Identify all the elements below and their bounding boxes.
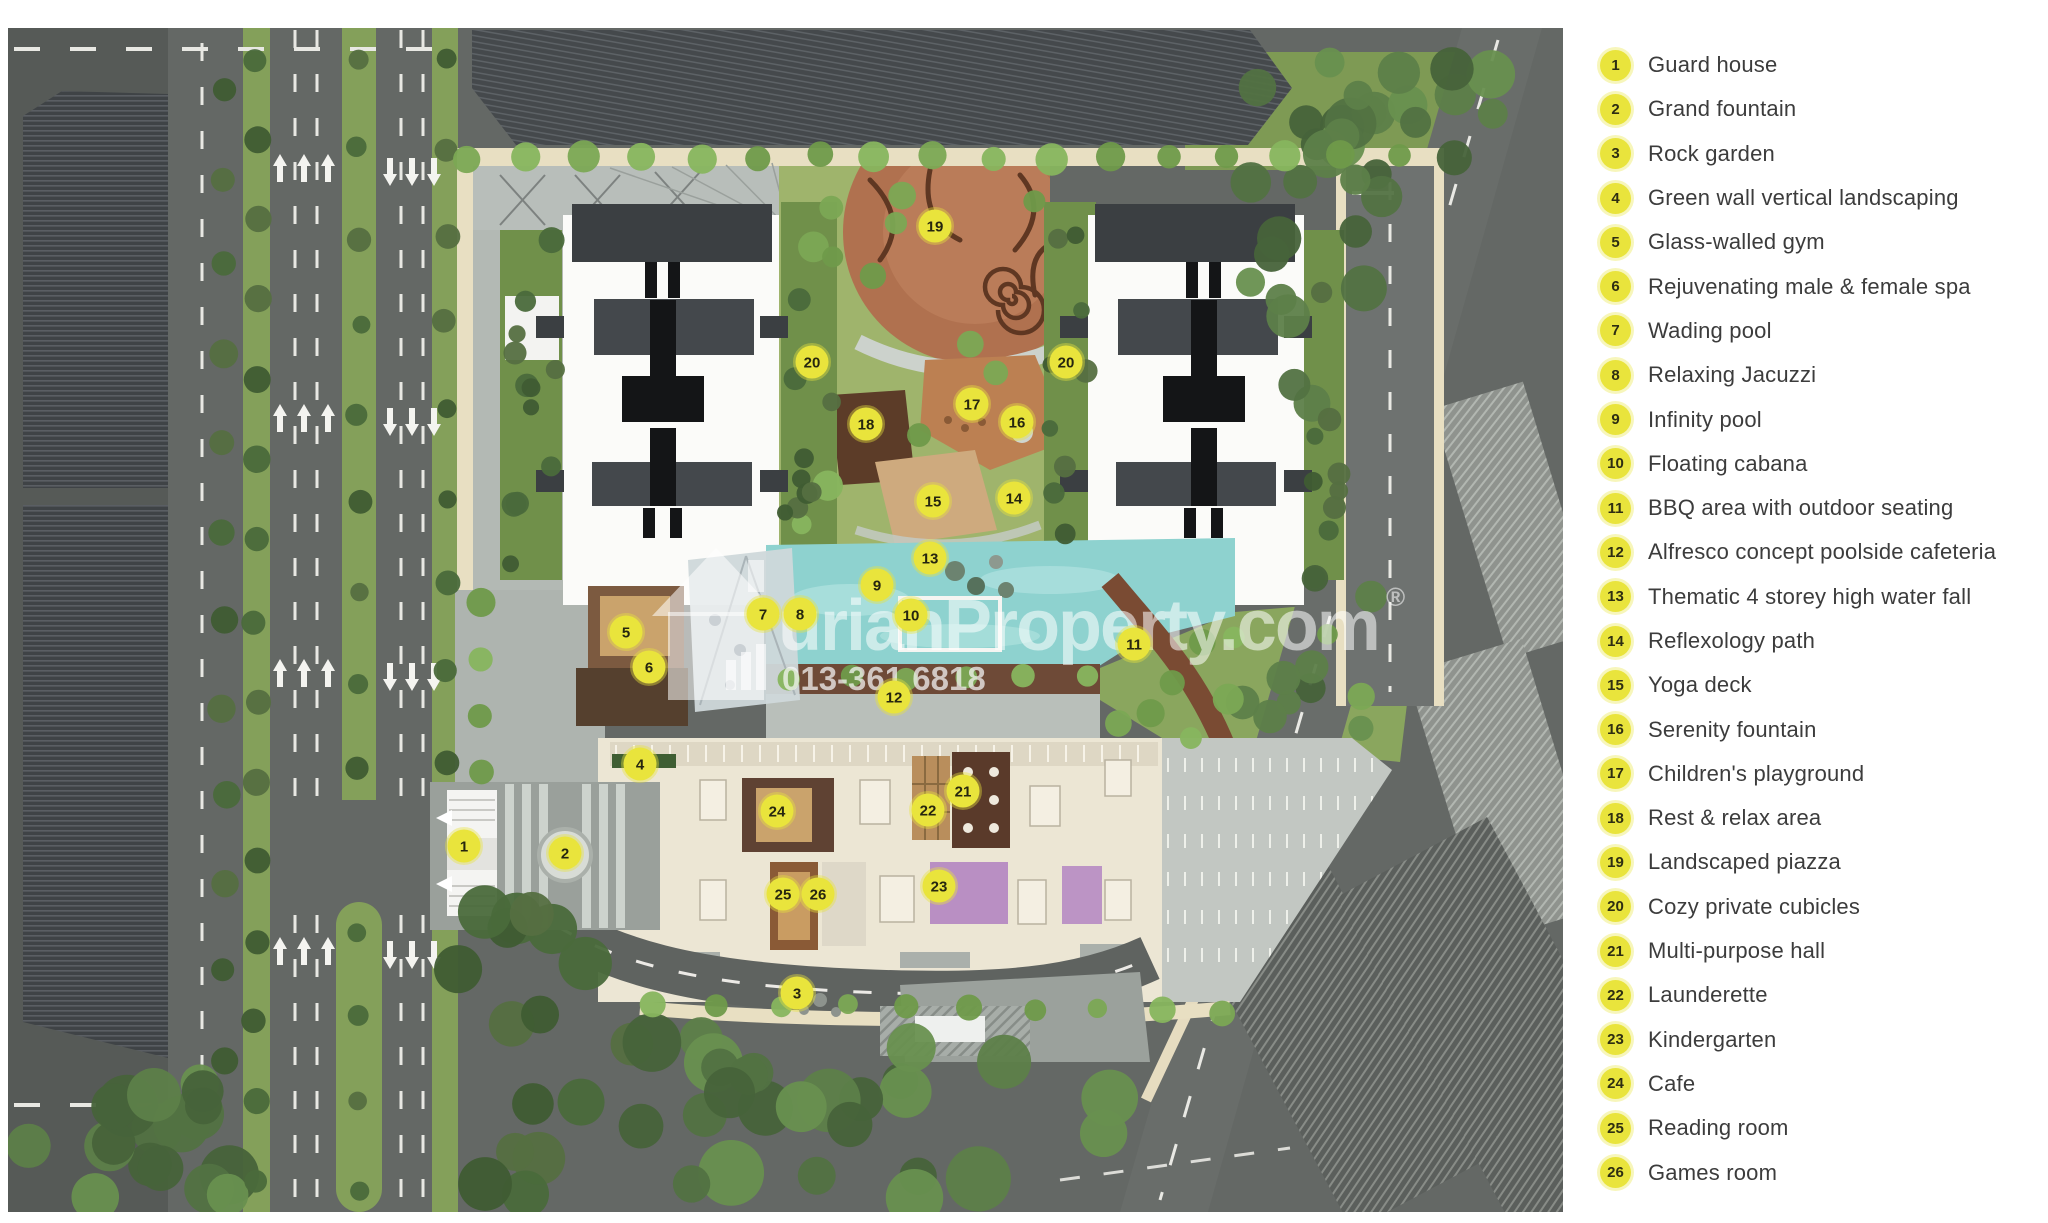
- legend-number-badge: 24: [1600, 1068, 1631, 1099]
- plan-marker-number: 14: [1006, 491, 1023, 508]
- plan-marker: 5: [610, 616, 643, 649]
- plan-marker-number: 10: [903, 608, 920, 625]
- plan-marker-number: 13: [922, 551, 939, 568]
- plan-marker-number: 6: [645, 660, 653, 677]
- plan-marker-number: 1: [460, 839, 468, 856]
- legend-item-label: Guard house: [1648, 52, 1777, 78]
- legend-item-label: Games room: [1648, 1160, 1777, 1186]
- legend-number-badge: 17: [1600, 758, 1631, 789]
- plan-marker-number: 20: [804, 355, 821, 372]
- plan-marker: 20: [796, 346, 829, 379]
- legend-item: 2Grand fountain: [1600, 87, 2040, 131]
- plan-marker-number: 15: [925, 494, 942, 511]
- legend: 1Guard house2Grand fountain3Rock garden4…: [1600, 43, 2040, 1195]
- legend-number-badge: 23: [1600, 1024, 1631, 1055]
- plan-marker: 21: [947, 775, 980, 808]
- plan-marker: 1: [448, 830, 481, 863]
- legend-number-badge: 12: [1600, 537, 1631, 568]
- legend-number-badge: 5: [1600, 227, 1631, 258]
- plan-marker-number: 23: [931, 879, 948, 896]
- legend-number-badge: 10: [1600, 448, 1631, 479]
- plan-marker: 16: [1001, 406, 1034, 439]
- plan-marker: 23: [923, 870, 956, 903]
- legend-item: 15Yoga deck: [1600, 663, 2040, 707]
- plan-marker-number: 24: [769, 804, 786, 821]
- legend-item-label: Glass-walled gym: [1648, 229, 1825, 255]
- plan-marker: 13: [914, 542, 947, 575]
- plan-marker: 22: [912, 794, 945, 827]
- plan-marker: 17: [956, 388, 989, 421]
- legend-number-badge: 25: [1600, 1113, 1631, 1144]
- legend-item: 25Reading room: [1600, 1106, 2040, 1150]
- legend-number-badge: 19: [1600, 847, 1631, 878]
- legend-item-label: Cafe: [1648, 1071, 1695, 1097]
- plan-marker-number: 26: [810, 887, 827, 904]
- legend-number-badge: 22: [1600, 980, 1631, 1011]
- plan-marker: 19: [919, 210, 952, 243]
- plan-marker: 6: [633, 651, 666, 684]
- legend-item: 19Landscaped piazza: [1600, 840, 2040, 884]
- legend-item: 21Multi-purpose hall: [1600, 929, 2040, 973]
- legend-item-label: Reflexology path: [1648, 628, 1815, 654]
- plan-marker: 10: [895, 599, 928, 632]
- plan-marker-number: 9: [873, 578, 881, 595]
- plan-marker-number: 4: [636, 757, 645, 774]
- legend-item: 26Games room: [1600, 1150, 2040, 1194]
- plan-marker: 9: [861, 569, 894, 602]
- site-plan-image: urianProperty.com ® 013-361 6818 1234567…: [8, 28, 1563, 1212]
- plan-marker-number: 20: [1058, 355, 1075, 372]
- legend-number-badge: 20: [1600, 891, 1631, 922]
- plan-marker-number: 8: [796, 607, 804, 624]
- plan-marker: 25: [767, 878, 800, 911]
- plan-marker-number: 21: [955, 784, 972, 801]
- plan-marker-number: 22: [920, 803, 937, 820]
- legend-number-badge: 11: [1600, 493, 1631, 524]
- legend-number-badge: 8: [1600, 360, 1631, 391]
- legend-item-label: Rejuvenating male & female spa: [1648, 274, 1971, 300]
- legend-item: 1Guard house: [1600, 43, 2040, 87]
- legend-item: 22Launderette: [1600, 973, 2040, 1017]
- legend-item-label: Floating cabana: [1648, 451, 1808, 477]
- legend-item: 16Serenity fountain: [1600, 707, 2040, 751]
- legend-number-badge: 1: [1600, 50, 1631, 81]
- plan-marker: 18: [850, 408, 883, 441]
- legend-item-label: Infinity pool: [1648, 407, 1762, 433]
- legend-number-badge: 16: [1600, 714, 1631, 745]
- legend-number-badge: 15: [1600, 670, 1631, 701]
- legend-item: 17Children's playground: [1600, 752, 2040, 796]
- legend-item-label: Kindergarten: [1648, 1027, 1776, 1053]
- legend-item: 13Thematic 4 storey high water fall: [1600, 575, 2040, 619]
- left-tower: [536, 204, 788, 605]
- plan-marker-number: 11: [1126, 637, 1142, 654]
- legend-number-badge: 4: [1600, 183, 1631, 214]
- plan-marker-number: 16: [1009, 415, 1026, 432]
- site-plan-page: urianProperty.com ® 013-361 6818 1234567…: [0, 0, 2048, 1223]
- legend-item: 12Alfresco concept poolside cafeteria: [1600, 530, 2040, 574]
- legend-item: 10Floating cabana: [1600, 442, 2040, 486]
- plan-marker: 4: [624, 748, 657, 781]
- legend-number-badge: 21: [1600, 936, 1631, 967]
- legend-number-badge: 2: [1600, 94, 1631, 125]
- legend-number-badge: 7: [1600, 315, 1631, 346]
- plan-marker: 26: [802, 878, 835, 911]
- legend-item: 8Relaxing Jacuzzi: [1600, 353, 2040, 397]
- legend-number-badge: 14: [1600, 626, 1631, 657]
- watermark-registered: ®: [1386, 582, 1405, 612]
- legend-item-label: Alfresco concept poolside cafeteria: [1648, 539, 1996, 565]
- legend-number-badge: 3: [1600, 138, 1631, 169]
- legend-item-label: Rest & relax area: [1648, 805, 1821, 831]
- legend-item: 18Rest & relax area: [1600, 796, 2040, 840]
- plan-marker: 2: [549, 837, 582, 870]
- legend-item: 9Infinity pool: [1600, 397, 2040, 441]
- plan-marker-number: 7: [759, 607, 767, 624]
- legend-item: 23Kindergarten: [1600, 1018, 2040, 1062]
- plan-marker: 12: [878, 681, 911, 714]
- legend-item: 4Green wall vertical landscaping: [1600, 176, 2040, 220]
- plan-marker: 15: [917, 485, 950, 518]
- poolside-cafeteria-deck: [766, 694, 1100, 740]
- legend-item: 5Glass-walled gym: [1600, 220, 2040, 264]
- plan-marker-number: 3: [793, 986, 801, 1003]
- legend-item: 14Reflexology path: [1600, 619, 2040, 663]
- legend-item-label: Landscaped piazza: [1648, 849, 1841, 875]
- plan-marker-number: 19: [927, 219, 944, 236]
- legend-item: 24Cafe: [1600, 1062, 2040, 1106]
- legend-item-label: Relaxing Jacuzzi: [1648, 362, 1816, 388]
- legend-item: 20Cozy private cubicles: [1600, 885, 2040, 929]
- legend-number-badge: 9: [1600, 404, 1631, 435]
- legend-item: 6Rejuvenating male & female spa: [1600, 264, 2040, 308]
- legend-item-label: Launderette: [1648, 982, 1768, 1008]
- legend-item: 7Wading pool: [1600, 309, 2040, 353]
- plan-marker: 3: [781, 977, 814, 1010]
- plan-marker: 24: [761, 795, 794, 828]
- legend-item-label: Cozy private cubicles: [1648, 894, 1860, 920]
- legend-item-label: Children's playground: [1648, 761, 1864, 787]
- plan-marker-number: 2: [561, 846, 569, 863]
- legend-item-label: Thematic 4 storey high water fall: [1648, 584, 1971, 610]
- legend-item: 11BBQ area with outdoor seating: [1600, 486, 2040, 530]
- plan-marker: 11: [1118, 628, 1151, 661]
- legend-item-label: Reading room: [1648, 1115, 1789, 1141]
- legend-item-label: Rock garden: [1648, 141, 1775, 167]
- plan-marker: 14: [998, 482, 1031, 515]
- plan-marker-number: 12: [886, 690, 903, 707]
- legend-item-label: BBQ area with outdoor seating: [1648, 495, 1953, 521]
- legend-item-label: Wading pool: [1648, 318, 1772, 344]
- plan-marker: 20: [1050, 346, 1083, 379]
- legend-item: 3Rock garden: [1600, 132, 2040, 176]
- plan-marker: 8: [784, 598, 817, 631]
- plan-marker-number: 18: [858, 417, 875, 434]
- legend-item-label: Grand fountain: [1648, 96, 1796, 122]
- plan-marker-number: 17: [964, 397, 981, 414]
- legend-item-label: Yoga deck: [1648, 672, 1752, 698]
- legend-item-label: Multi-purpose hall: [1648, 938, 1825, 964]
- plan-marker: 7: [747, 598, 780, 631]
- legend-item-label: Green wall vertical landscaping: [1648, 185, 1959, 211]
- legend-item-label: Serenity fountain: [1648, 717, 1817, 743]
- plan-marker-number: 25: [775, 887, 792, 904]
- plan-marker-number: 5: [622, 625, 630, 642]
- site-plan-svg: urianProperty.com ® 013-361 6818 1234567…: [8, 28, 1563, 1212]
- legend-number-badge: 13: [1600, 581, 1631, 612]
- legend-number-badge: 6: [1600, 271, 1631, 302]
- legend-number-badge: 18: [1600, 803, 1631, 834]
- legend-number-badge: 26: [1600, 1157, 1631, 1188]
